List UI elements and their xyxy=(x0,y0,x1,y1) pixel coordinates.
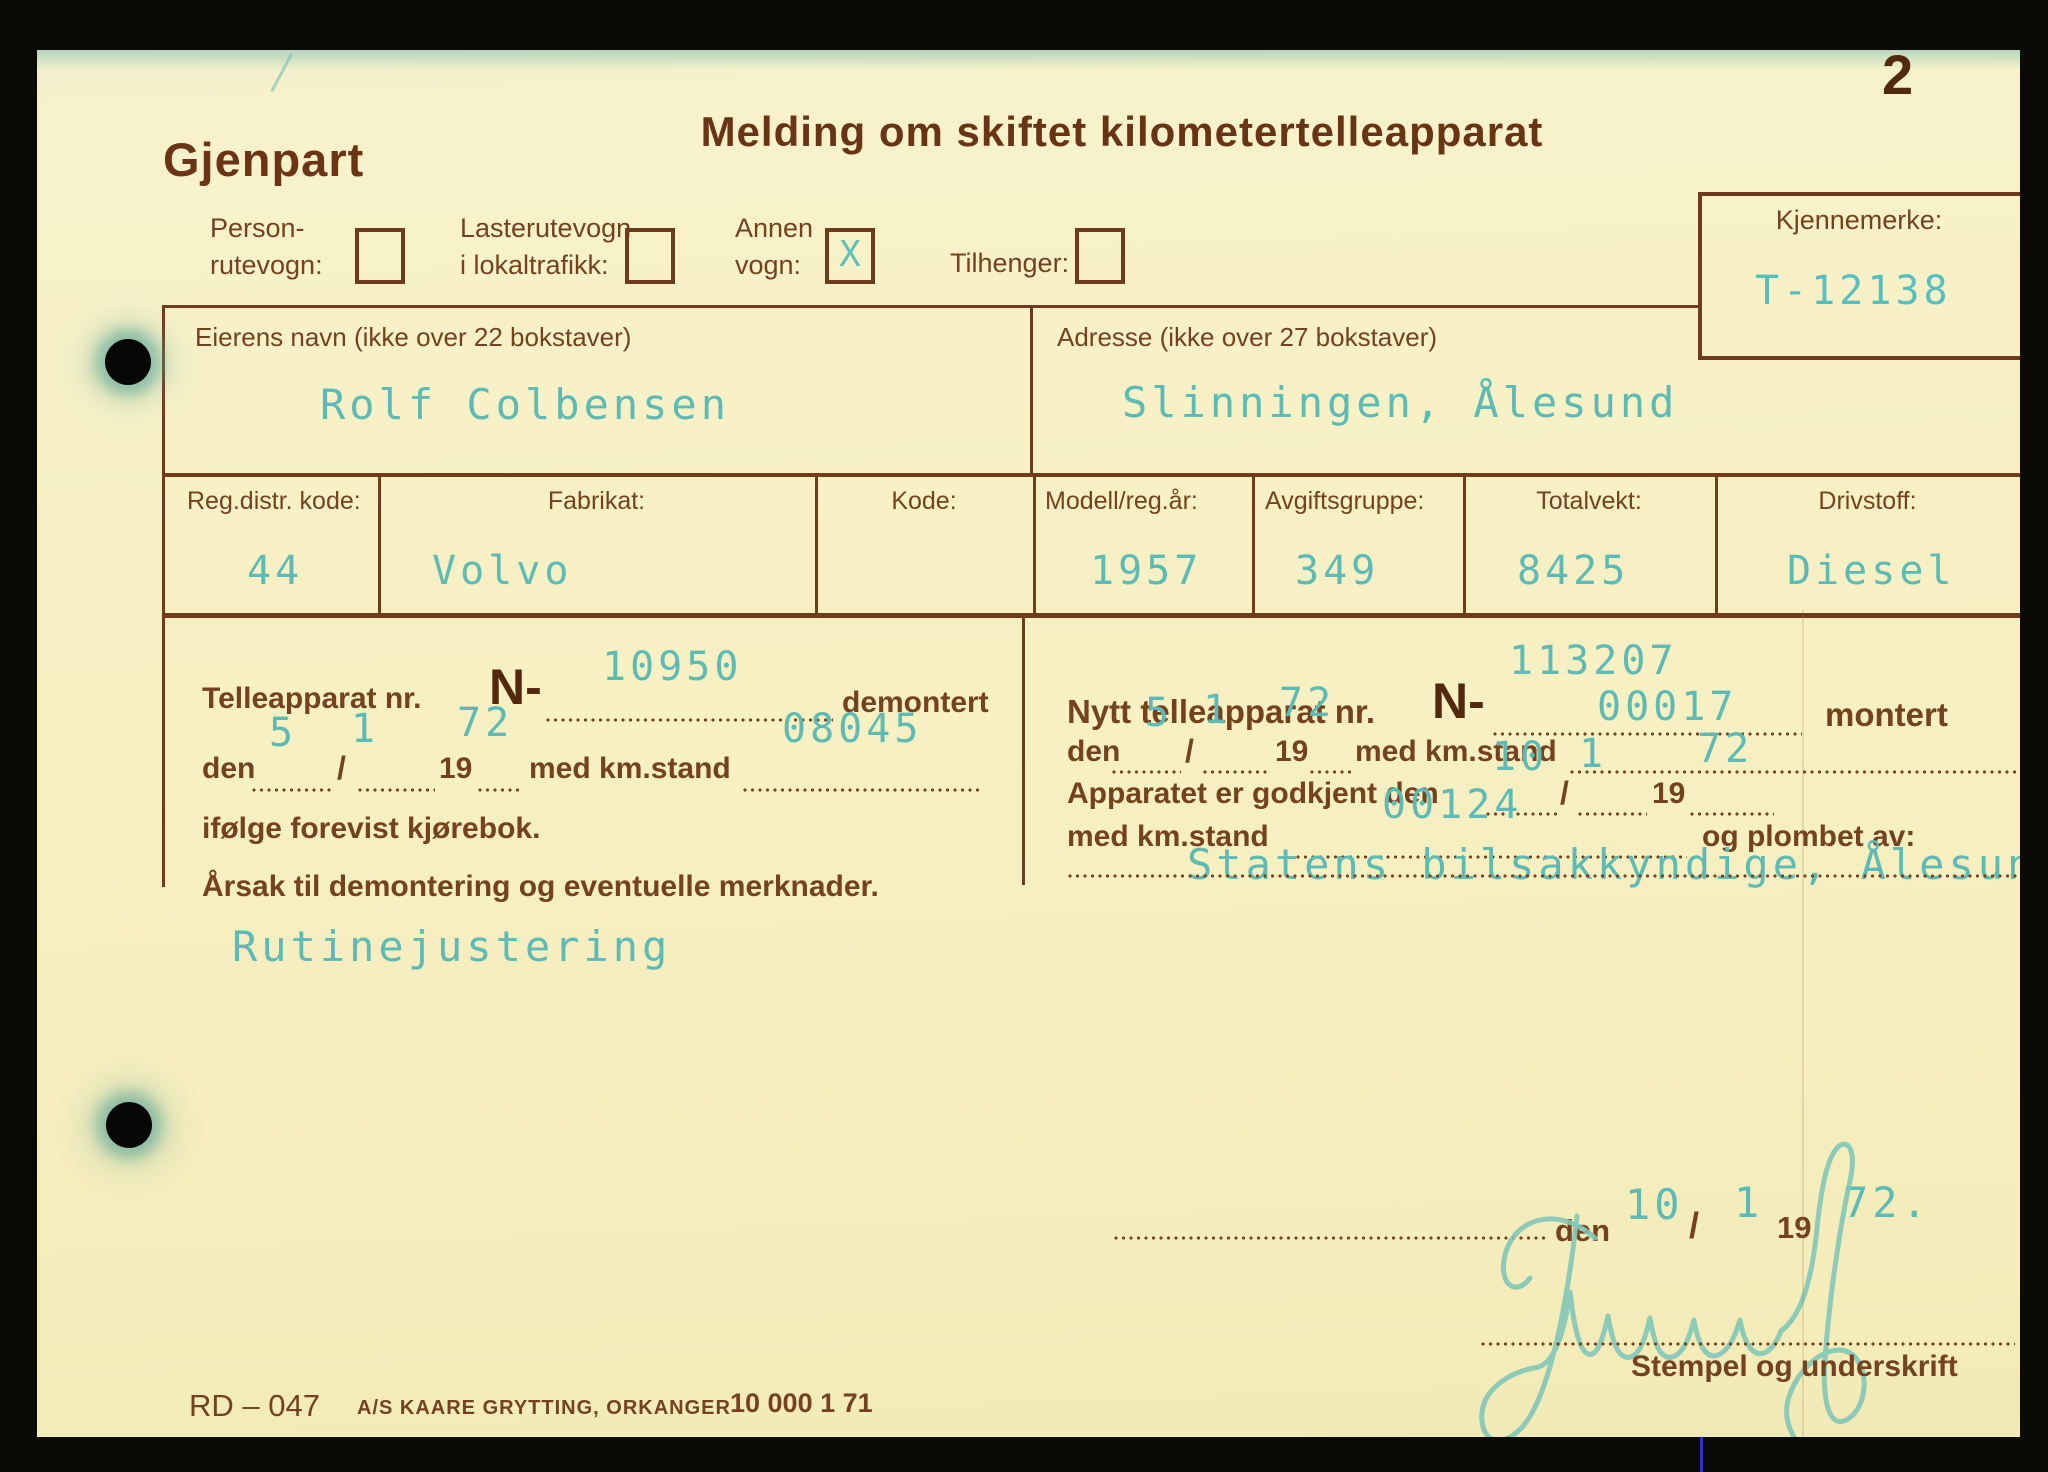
signature-caption: Stempel og underskrift xyxy=(1631,1350,1958,1384)
col-avgift-label: Avgiftsgruppe: xyxy=(1265,487,1424,516)
totalvekt-value: 8425 xyxy=(1517,548,1629,594)
handwritten-signature xyxy=(1457,1120,1897,1437)
option-label-line1: Annen xyxy=(735,213,813,244)
installed-den-label: den xyxy=(1067,735,1120,769)
col-kode-label: Kode: xyxy=(815,487,1033,516)
approved-day: 10 xyxy=(1492,734,1548,780)
owner-name-value: Rolf Colbensen xyxy=(320,380,730,429)
removed-reason-value: Rutinejustering xyxy=(232,922,671,971)
approved-month: 1 xyxy=(1579,731,1607,777)
paper-crease xyxy=(1802,610,1804,1437)
owner-name-label: Eierens navn (ikke over 22 bokstaver) xyxy=(195,322,631,353)
approved-slash: / xyxy=(1560,775,1569,812)
table-top-line xyxy=(162,473,2020,477)
owner-section-top-line xyxy=(162,305,1698,308)
fabrikat-value: Volvo xyxy=(432,548,572,594)
removed-km-stand: 08045 xyxy=(782,706,922,752)
signature-dotted-line xyxy=(1480,1342,2015,1346)
footer-form-code: RD – 047 xyxy=(189,1388,320,1424)
col-fabrikat-label: Fabrikat: xyxy=(378,487,815,516)
punch-hole-top xyxy=(105,339,151,385)
approved-year: 72 xyxy=(1697,726,1753,772)
copy-label: Gjenpart xyxy=(163,132,364,187)
installed-year-dots xyxy=(1309,770,1351,774)
removed-year-dots xyxy=(477,788,522,792)
option-label-line1: Lasterutevogn xyxy=(460,213,631,244)
page-number: 2 xyxy=(1882,50,1913,107)
checkbox-personrutevogn xyxy=(355,228,405,284)
removed-apparat-nr: 10950 xyxy=(602,644,742,690)
removed-den-label: den xyxy=(202,752,255,786)
removed-book-line: ifølge forevist kjørebok. xyxy=(202,812,540,846)
form-left-border xyxy=(162,305,165,887)
table-bottom-line xyxy=(162,613,2020,618)
address-value: Slinningen, Ålesund xyxy=(1122,378,1678,427)
installed-day: 5 xyxy=(1145,690,1173,736)
col-drivstoff-label: Drivstoff: xyxy=(1715,487,2020,516)
checkbox-x-mark: X xyxy=(829,234,871,275)
middle-section-divider xyxy=(1022,613,1025,885)
punch-hole-bottom xyxy=(106,1102,152,1148)
removed-year-prefix: 19 xyxy=(439,752,472,786)
removed-label-prefix: Telleapparat nr. xyxy=(202,682,422,716)
removed-km-label: med km.stand xyxy=(529,752,731,786)
approved-month-dots xyxy=(1577,812,1647,816)
regdistr-value: 44 xyxy=(247,548,303,594)
footer-edition: 10 000 1 71 xyxy=(730,1388,873,1419)
checkbox-annen-vogn-checked: X xyxy=(825,228,875,284)
plate-label: Kjennemerke: xyxy=(1698,205,2020,236)
avgift-value: 349 xyxy=(1295,548,1379,594)
sealed-by-dotted-line xyxy=(1067,874,2020,878)
footer-printer: A/S KAARE GRYTTING, ORKANGER xyxy=(357,1397,731,1420)
removed-km-dots xyxy=(742,788,980,792)
paper-sheet: 2 Gjenpart Melding om skiftet kilometert… xyxy=(37,50,2020,1437)
option-label-line1: Person- xyxy=(210,213,305,244)
removed-month-dots xyxy=(357,788,435,792)
scanned-form: 2 Gjenpart Melding om skiftet kilometert… xyxy=(0,0,2048,1472)
approved-year-prefix: 19 xyxy=(1652,777,1685,811)
approved-year-dots xyxy=(1689,812,1774,816)
option-label-line1: Tilhenger: xyxy=(950,248,1069,279)
installed-month-dots xyxy=(1202,770,1270,774)
removed-year: 72 xyxy=(457,700,513,746)
installed-month: 1 xyxy=(1203,687,1231,733)
removed-day-dots xyxy=(251,788,333,792)
checkbox-tilhenger xyxy=(1075,228,1125,284)
installed-year: 72 xyxy=(1279,680,1335,726)
modell-value: 1957 xyxy=(1090,548,1202,594)
option-label-line2: rutevogn: xyxy=(210,250,323,281)
installed-label-suffix: montert xyxy=(1825,696,1948,734)
address-label: Adresse (ikke over 27 bokstaver) xyxy=(1057,322,1437,353)
table-divider-4 xyxy=(1252,473,1255,615)
removed-date-slash: / xyxy=(337,750,346,787)
option-label-line2: vogn: xyxy=(735,250,801,281)
table-divider-3 xyxy=(1033,473,1036,615)
col-regdistr-label: Reg.distr. kode: xyxy=(187,487,361,516)
installed-km-stand: 00017 xyxy=(1597,684,1737,730)
removed-reason-label: Årsak til demontering og eventuelle merk… xyxy=(202,870,879,904)
installed-date-slash: / xyxy=(1185,733,1194,770)
installed-km-dots xyxy=(1569,770,2020,774)
installed-year-prefix: 19 xyxy=(1275,735,1308,769)
removed-day: 5 xyxy=(269,710,297,756)
pen-mark-bottom-margin xyxy=(1700,1437,1703,1472)
sealed-by-value: Statens bilsakkyndige, Ålesund. xyxy=(1187,840,2020,889)
installed-apparat-nr: 113207 xyxy=(1509,638,1678,684)
installed-n-prefix: N- xyxy=(1432,672,1485,730)
installed-day-dots xyxy=(1111,770,1181,774)
owner-address-divider xyxy=(1030,305,1033,475)
plate-value: T-12138 xyxy=(1755,268,1952,314)
paper-top-tint xyxy=(37,50,2020,70)
option-label-line2: i lokaltrafikk: xyxy=(460,250,609,281)
installed-km-stand2: 00124 xyxy=(1382,782,1522,828)
checkbox-lasterutevogn xyxy=(625,228,675,284)
drivstoff-value: Diesel xyxy=(1787,548,1956,594)
col-totalvekt-label: Totalvekt: xyxy=(1463,487,1715,516)
removed-month: 1 xyxy=(351,706,379,752)
col-modell-label: Modell/reg.år: xyxy=(1045,487,1198,516)
form-title: Melding om skiftet kilometertelleapparat xyxy=(627,108,1617,156)
